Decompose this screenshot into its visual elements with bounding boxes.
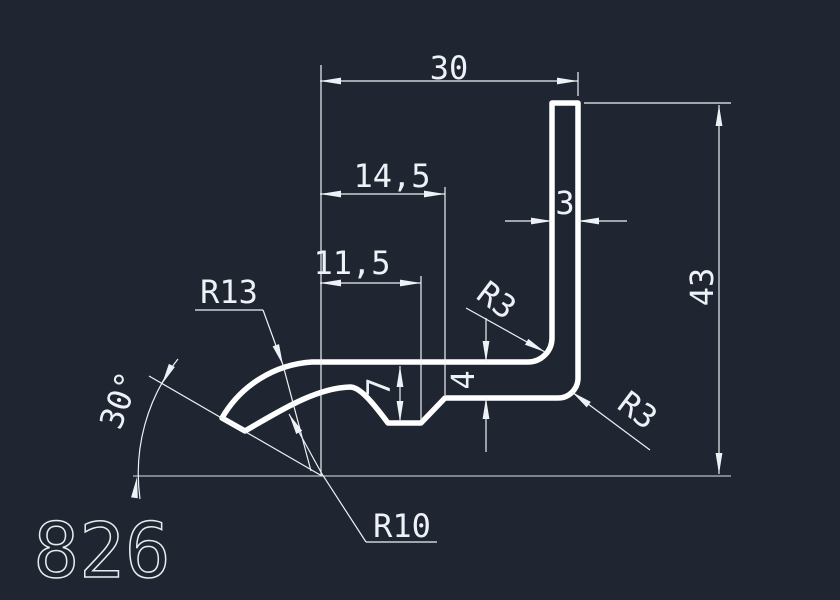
dim-top-width-label: 30 [430, 49, 469, 87]
dim-radius-r3-corner: R3 [570, 383, 664, 450]
arrowhead [531, 218, 552, 225]
dim-wall-thickness-label: 3 [555, 184, 574, 222]
arrowhead [483, 398, 490, 419]
arrowhead [400, 280, 421, 287]
dim-groove-far-label: 14,5 [353, 157, 430, 195]
dim-flange-thickness-label: 4 [444, 370, 482, 389]
arrowhead [557, 78, 578, 85]
dim-total-height-label: 43 [683, 268, 721, 307]
arrowhead [525, 339, 547, 355]
dim-flange-thickness: 4 [444, 318, 489, 452]
dim-r10-label: R10 [373, 507, 431, 545]
dim-total-height: 43 [584, 103, 731, 474]
arrowhead [483, 341, 490, 362]
part-number-label: 826 [33, 506, 170, 595]
dim-groove-near-label: 11,5 [313, 244, 390, 282]
cad-drawing: 30 14,5 11,5 3 7 4 [0, 0, 840, 600]
dim-radius-r3-fillet: R3 [466, 273, 547, 355]
dim-radius-r13: R13 [195, 273, 311, 471]
arrowhead [159, 364, 175, 386]
arrowhead [286, 412, 302, 434]
dim-wall-thickness: 3 [505, 184, 627, 224]
dim-end-angle-label: 30° [92, 367, 147, 434]
dim-radius-r10: R10 [286, 412, 437, 545]
dim-r13-label: R13 [200, 273, 258, 311]
arrowhead [716, 105, 723, 126]
arrowhead [578, 218, 599, 225]
dim-r3-corner-label: R3 [611, 383, 665, 437]
arrowhead [273, 344, 287, 366]
dim-top-width: 30 [320, 49, 578, 96]
arrowhead [320, 78, 341, 85]
cad-drawing-canvas[interactable]: 30 14,5 11,5 3 7 4 [0, 0, 840, 600]
dim-groove-depth-label: 7 [360, 377, 398, 396]
radial-line [283, 365, 311, 471]
arrowhead [320, 191, 341, 198]
arrowhead [397, 401, 404, 422]
dim-r3-fillet-label: R3 [470, 273, 524, 327]
arrowhead [716, 453, 723, 474]
